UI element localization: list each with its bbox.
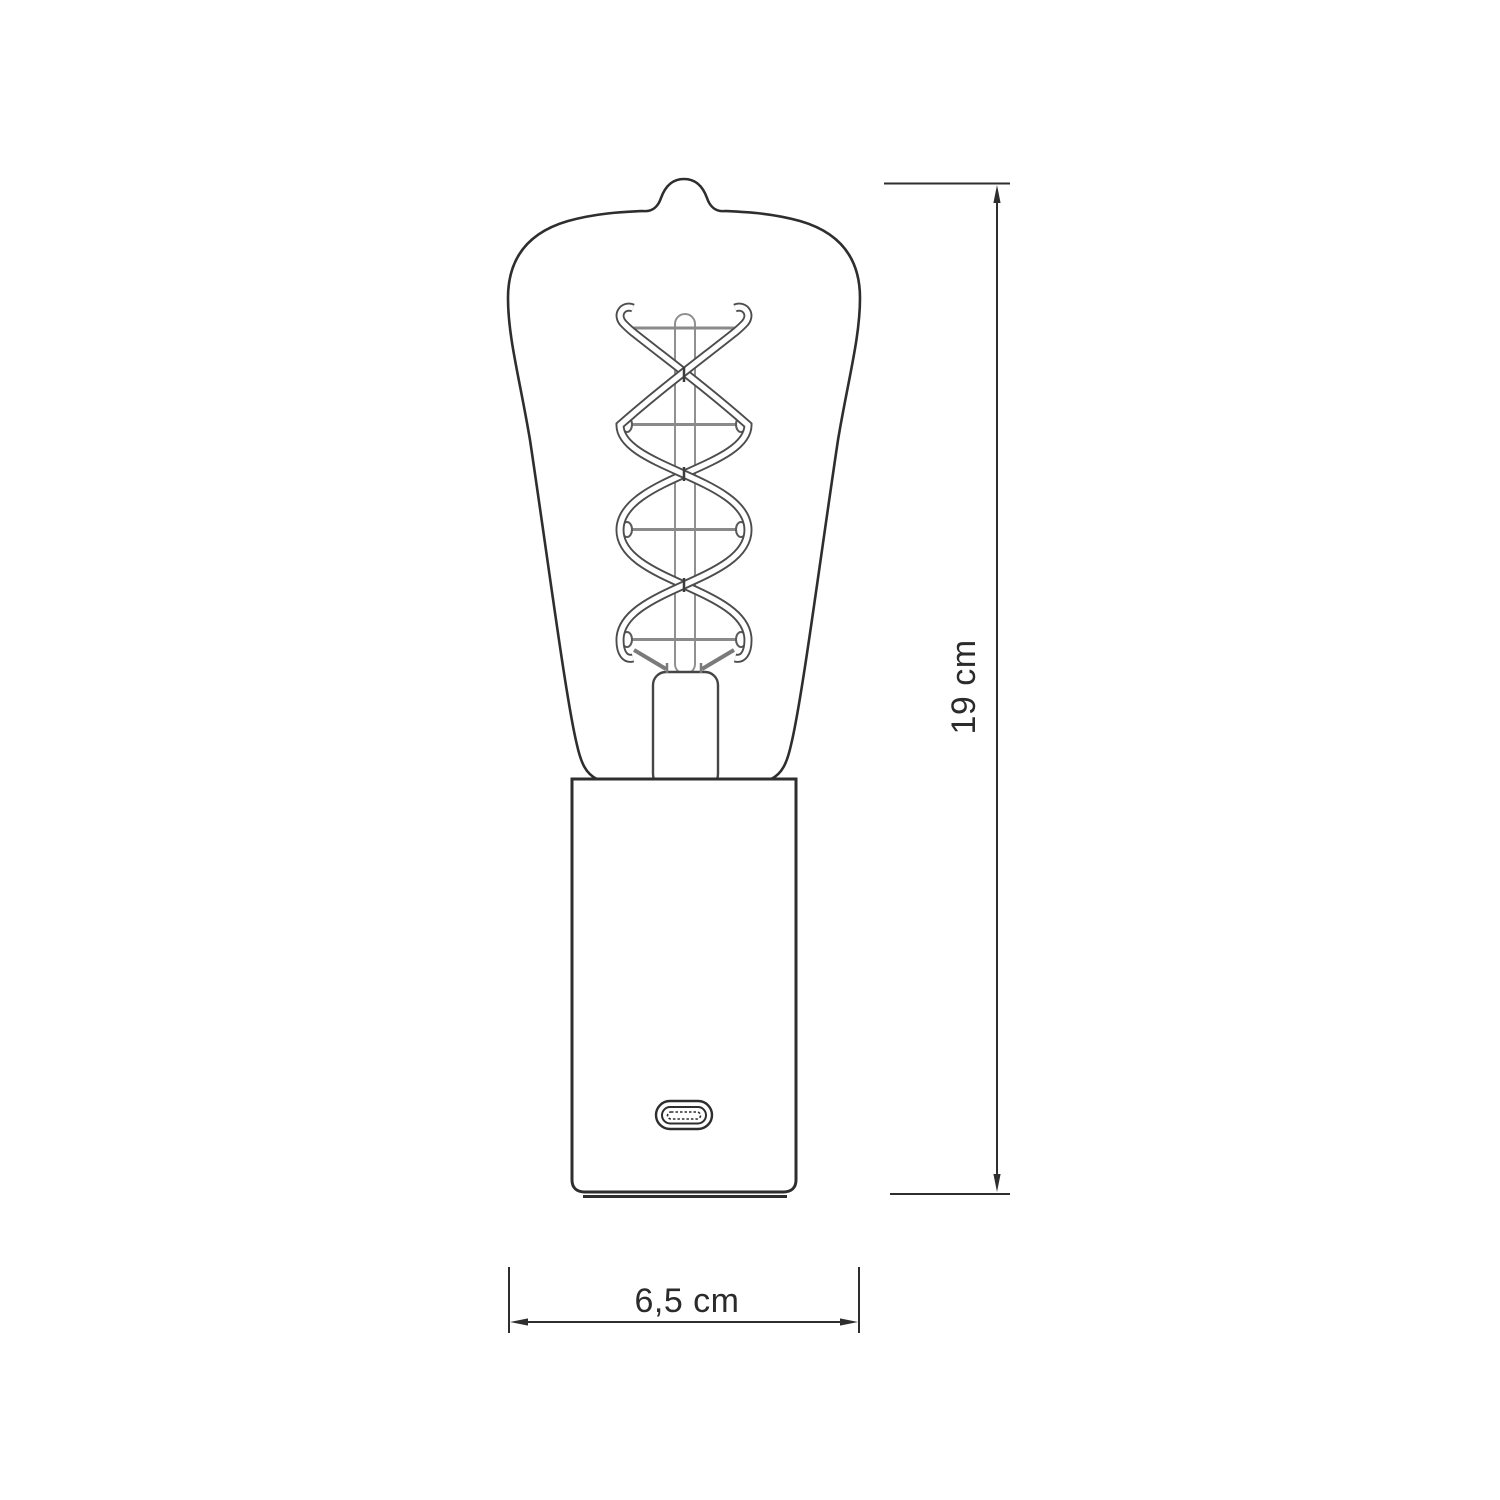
glass-stem (653, 672, 718, 787)
lamp-base (572, 779, 796, 1197)
height-dimension-label: 19 cm (945, 639, 983, 734)
usb-c-outer (656, 1101, 712, 1129)
lamp-technical-drawing-page: 19 cm 6,5 cm (0, 0, 1500, 1500)
usb-c-port-icon (656, 1101, 712, 1129)
width-dimension-label: 6,5 cm (634, 1282, 739, 1320)
lamp-technical-drawing: 19 cm 6,5 cm (0, 0, 1500, 1500)
